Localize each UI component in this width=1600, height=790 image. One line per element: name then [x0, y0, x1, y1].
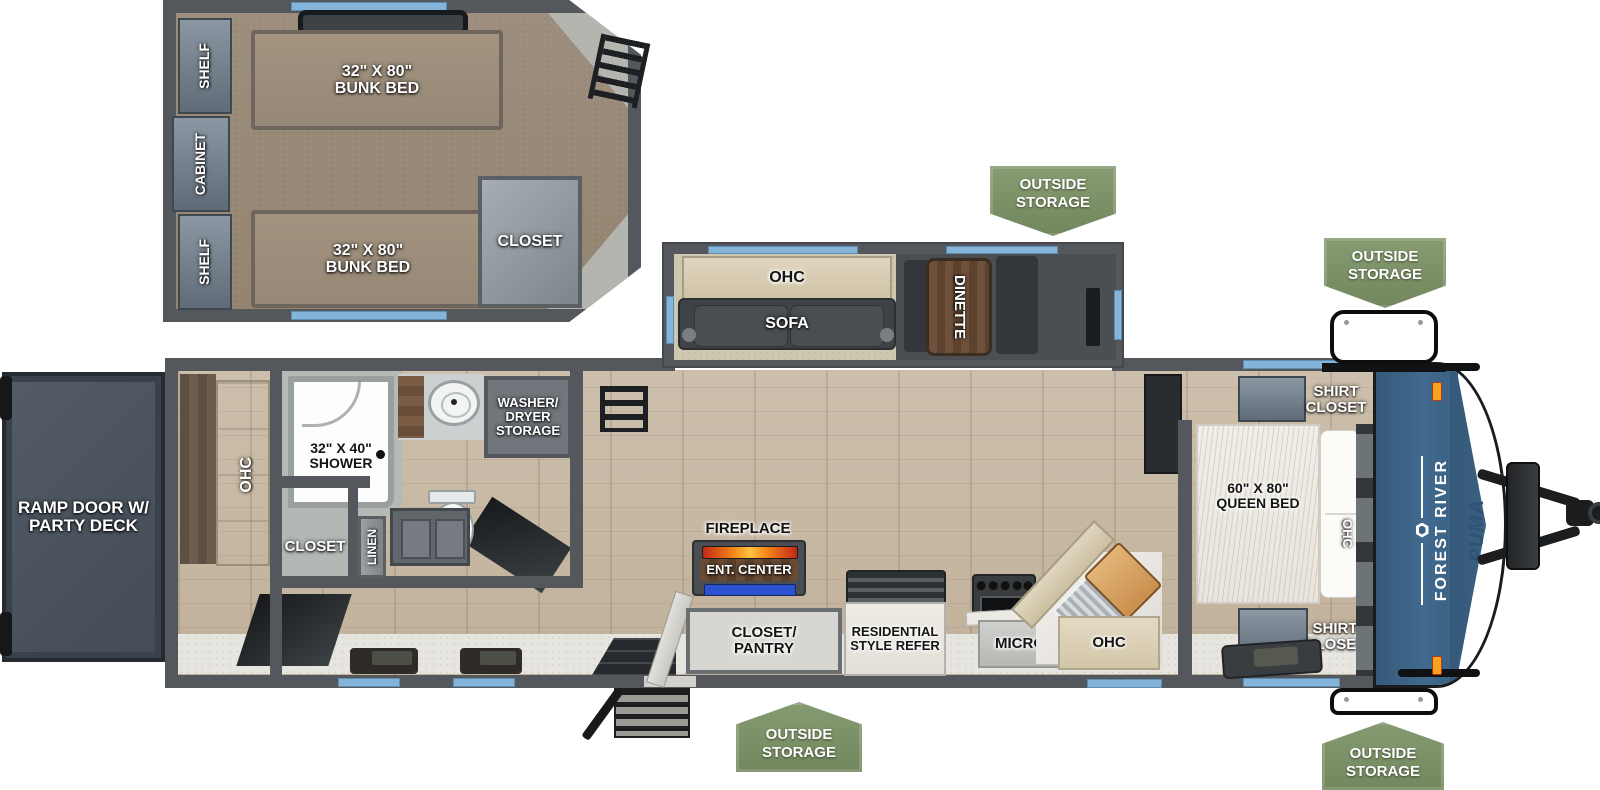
fireplace-flame [702, 546, 798, 559]
ramp-door: RAMP DOOR W/ PARTY DECK [2, 372, 165, 662]
bunk-bed-bottom-name: BUNK BED [326, 259, 410, 276]
bunk-room-inset: SHELF CABINET SHELF 32" X 80" BUNK BED 3… [163, 0, 641, 322]
outside-storage-box-top [1330, 310, 1438, 364]
refer: RESIDENTIAL STYLE REFER [844, 602, 946, 676]
slide-window-right [1114, 290, 1122, 340]
bath-faucet [451, 399, 457, 405]
slide-tv [1086, 288, 1100, 346]
ramp-hinge-top [0, 376, 12, 420]
vanity-door-2 [435, 519, 465, 559]
wall-bath-bottom [282, 576, 582, 588]
linen-cabinet: LINEN [358, 516, 386, 578]
washer-dryer-label: WASHER/ DRYER STORAGE [489, 396, 567, 438]
bedroom-bench-pad [1253, 646, 1298, 667]
shower-glass-arc [302, 380, 361, 427]
front-cap: FOREST RIVER PUMA [1373, 362, 1507, 688]
storage-box-platform [1322, 363, 1446, 372]
badge-outside-storage-top-center: OUTSIDE STORAGE [990, 166, 1116, 236]
garage-ohc-label: OHC [238, 457, 255, 493]
shower-label-wrap: 32" X 40" SHOWER [294, 434, 388, 478]
sofa-label: SOFA [765, 315, 809, 332]
shower-drain [376, 450, 385, 459]
sofa-ohc-label: OHC [769, 269, 805, 286]
bath-sink [428, 380, 480, 426]
queen-bed: 60" X 80" QUEEN BED [1196, 424, 1320, 604]
bunk-bed-bottom-size: 32" X 80" [333, 242, 403, 259]
queen-bed-name: QUEEN BED [1216, 496, 1299, 511]
forest-river-logo-icon [1416, 523, 1429, 538]
dinette-bench-right [996, 256, 1038, 354]
bunk-shelf-bottom: SHELF [178, 214, 232, 310]
bunk-shelf-bottom-label: SHELF [197, 239, 212, 285]
garage-bench-2-pad [480, 651, 516, 665]
badge-label: OUTSIDE STORAGE [749, 726, 849, 762]
bunk-shelf-top: SHELF [178, 18, 232, 114]
forest-river-wordmark-wrap: FOREST RIVER [1430, 395, 1454, 665]
bedroom-ohc-label-wrap: OHC [1336, 500, 1358, 566]
forest-river-wordmark: FOREST RIVER [1433, 459, 1451, 601]
bunk-bed-top: 32" X 80" BUNK BED [251, 30, 503, 130]
rv-floorplan: SHELF CABINET SHELF 32" X 80" BUNK BED 3… [0, 0, 1600, 790]
slide-window-top-2 [946, 246, 1058, 254]
bath-closet-label-wrap: CLOSET [282, 532, 348, 562]
slide-window-top-1 [708, 246, 858, 254]
shirt-closet-top-label: SHIRT CLOSET [1305, 384, 1367, 416]
garage-wall-strip [180, 374, 216, 564]
entry-steps-exterior [614, 688, 690, 738]
kitchen-ohc: OHC [1058, 616, 1160, 670]
sofa-armrest-right [880, 328, 894, 342]
bunk-cabinet-label: CABINET [193, 133, 208, 195]
bunk-bed-top-size: 32" X 80" [342, 63, 412, 80]
ent-center-label: ENT. CENTER [706, 563, 791, 577]
forest-river-logo-inner [1419, 526, 1426, 535]
badge-outside-storage-bottom-right: OUTSIDE STORAGE [1322, 722, 1444, 790]
storage-screw-3 [1344, 697, 1349, 702]
outside-storage-box-bottom [1330, 688, 1438, 715]
slide-window-left [666, 296, 674, 344]
battery-box [1506, 462, 1540, 570]
corner-pantry-dark [1144, 374, 1182, 474]
sofa: SOFA [678, 298, 896, 350]
ramp-hinge-bottom [0, 612, 12, 656]
marker-light-bottom [1432, 656, 1442, 675]
garage-bench-1-pad [372, 651, 412, 665]
storage-screw-4 [1418, 697, 1423, 702]
dinette-label: DINETTE [951, 275, 967, 339]
bunk-window-bottom [291, 311, 447, 320]
bedroom-wall [1178, 420, 1192, 675]
badge-outside-storage-bottom-center: OUTSIDE STORAGE [736, 702, 862, 772]
wall-garage-bath [270, 371, 282, 675]
wall-closet-right [348, 488, 358, 588]
linen-label: LINEN [366, 529, 379, 565]
shower: 32" X 40" SHOWER [288, 376, 394, 508]
wall-left [165, 358, 178, 688]
shower-size: 32" X 40" [310, 441, 372, 456]
kitchen-ohc-label: OHC [1092, 635, 1125, 651]
puma-wordmark: PUMA [1466, 499, 1489, 562]
bunk-bed-top-name: BUNK BED [335, 80, 419, 97]
queen-bed-size: 60" X 80" [1227, 481, 1289, 496]
dinette-table: DINETTE [926, 258, 992, 356]
bath-vanity-cabinet [390, 508, 470, 566]
vanity-wood [398, 376, 424, 438]
window-bottom-1 [338, 678, 400, 687]
fireplace-label-wrap: FIREPLACE [688, 520, 808, 538]
garage-bench-1 [350, 648, 418, 674]
slideout: OHC SOFA DINETTE [662, 242, 1124, 368]
emblem-line-top [1421, 456, 1423, 518]
washer-dryer-storage: WASHER/ DRYER STORAGE [484, 376, 572, 458]
storage-screw-1 [1344, 320, 1349, 325]
bedroom-ohc-label: OHC [1340, 519, 1354, 548]
bunk-closet-label: CLOSET [498, 233, 563, 250]
window-bottom-3 [1087, 679, 1162, 688]
wall-ladder-icon [600, 386, 648, 432]
ramp-door-label: RAMP DOOR W/ PARTY DECK [18, 499, 150, 536]
fireplace-label: FIREPLACE [705, 521, 790, 537]
marker-light-top [1432, 382, 1442, 401]
brand-emblem-column [1414, 437, 1430, 623]
ent-center-band: ENT. CENTER [700, 559, 798, 581]
vanity-door-1 [401, 519, 431, 559]
puma-wordmark-wrap: PUMA [1464, 465, 1490, 595]
bedroom-bench [1221, 639, 1323, 680]
wall-top-left [165, 358, 675, 371]
bunk-shelf-top-label: SHELF [197, 43, 212, 89]
badge-label: OUTSIDE STORAGE [1335, 248, 1435, 284]
badge-label: OUTSIDE STORAGE [1003, 176, 1103, 212]
ent-center-island: ENT. CENTER [692, 540, 806, 596]
shirt-closet-top-label-wrap: SHIRT CLOSET [1296, 380, 1376, 420]
sofa-armrest-left [682, 328, 696, 342]
refer-label: RESIDENTIAL STYLE REFER [847, 625, 943, 653]
garage-ohc-label-wrap: OHC [236, 430, 258, 520]
bath-sink-bowl [441, 392, 471, 418]
window-bottom-2 [453, 678, 515, 687]
bunk-bed-bottom: 32" X 80" BUNK BED [251, 210, 485, 308]
garage-bench-2 [460, 648, 522, 674]
closet-pantry: CLOSET/ PANTRY [686, 608, 842, 674]
ent-center-blue-shelf [704, 584, 796, 596]
badge-outside-storage-top-right: OUTSIDE STORAGE [1324, 238, 1446, 308]
storage-screw-2 [1418, 320, 1423, 325]
closet-pantry-label: CLOSET/ PANTRY [709, 625, 819, 657]
shower-name: SHOWER [310, 456, 373, 471]
sofa-ohc: OHC [682, 256, 892, 300]
queen-bed-label-wrap: 60" X 80" QUEEN BED [1198, 466, 1318, 526]
bunk-closet: CLOSET [478, 176, 582, 308]
bunk-cabinet: CABINET [172, 116, 230, 212]
bath-closet-label: CLOSET [285, 539, 346, 555]
badge-label: OUTSIDE STORAGE [1333, 745, 1433, 781]
bedroom-window-bottom [1243, 678, 1340, 687]
emblem-line-bottom [1421, 543, 1423, 605]
wall-shower-closet [282, 476, 370, 488]
